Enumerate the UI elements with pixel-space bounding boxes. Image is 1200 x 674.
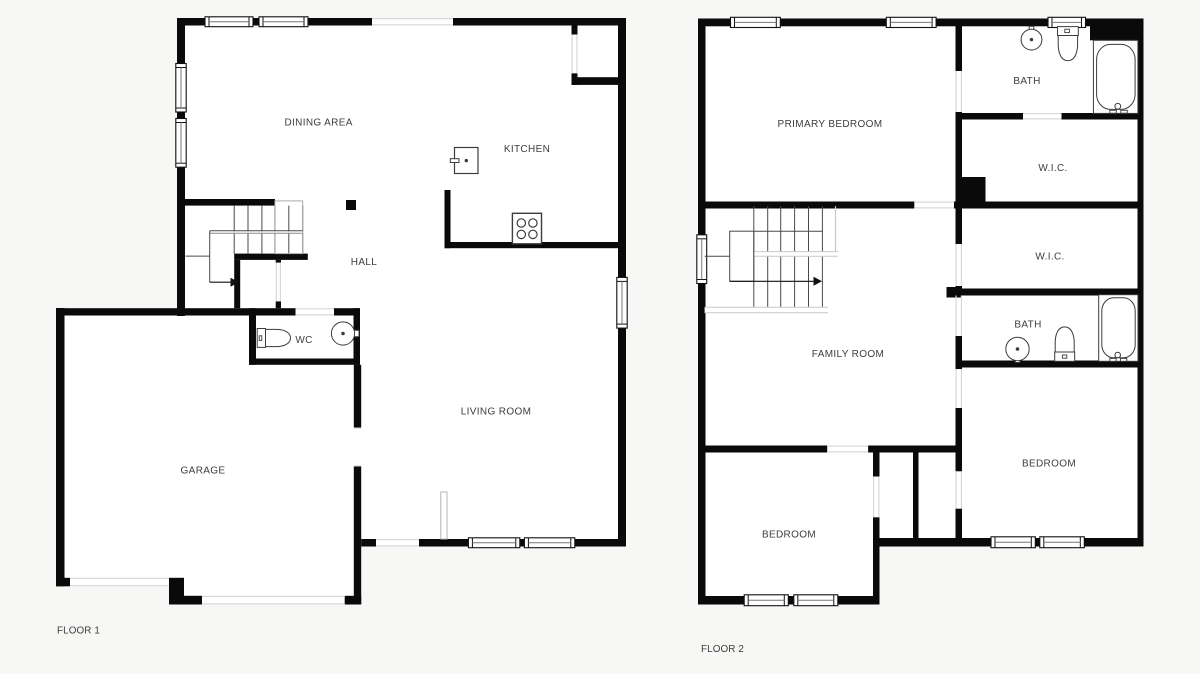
svg-text:HALL: HALL (351, 257, 378, 268)
svg-text:BATH: BATH (1013, 76, 1040, 87)
svg-text:LIVING ROOM: LIVING ROOM (461, 406, 532, 417)
svg-text:W.I.C.: W.I.C. (1035, 251, 1064, 262)
svg-text:W.I.C.: W.I.C. (1038, 163, 1067, 174)
svg-text:FAMILY ROOM: FAMILY ROOM (812, 349, 884, 360)
svg-text:BATH: BATH (1014, 319, 1041, 330)
svg-text:PRIMARY BEDROOM: PRIMARY BEDROOM (778, 119, 883, 130)
svg-text:FLOOR 1: FLOOR 1 (57, 626, 100, 637)
svg-text:KITCHEN: KITCHEN (504, 144, 550, 155)
svg-text:DINING AREA: DINING AREA (284, 117, 352, 128)
svg-text:BEDROOM: BEDROOM (1022, 458, 1076, 469)
svg-text:FLOOR 2: FLOOR 2 (701, 644, 744, 655)
svg-text:WC: WC (295, 335, 312, 346)
svg-text:GARAGE: GARAGE (181, 465, 226, 476)
svg-text:BEDROOM: BEDROOM (762, 529, 816, 540)
